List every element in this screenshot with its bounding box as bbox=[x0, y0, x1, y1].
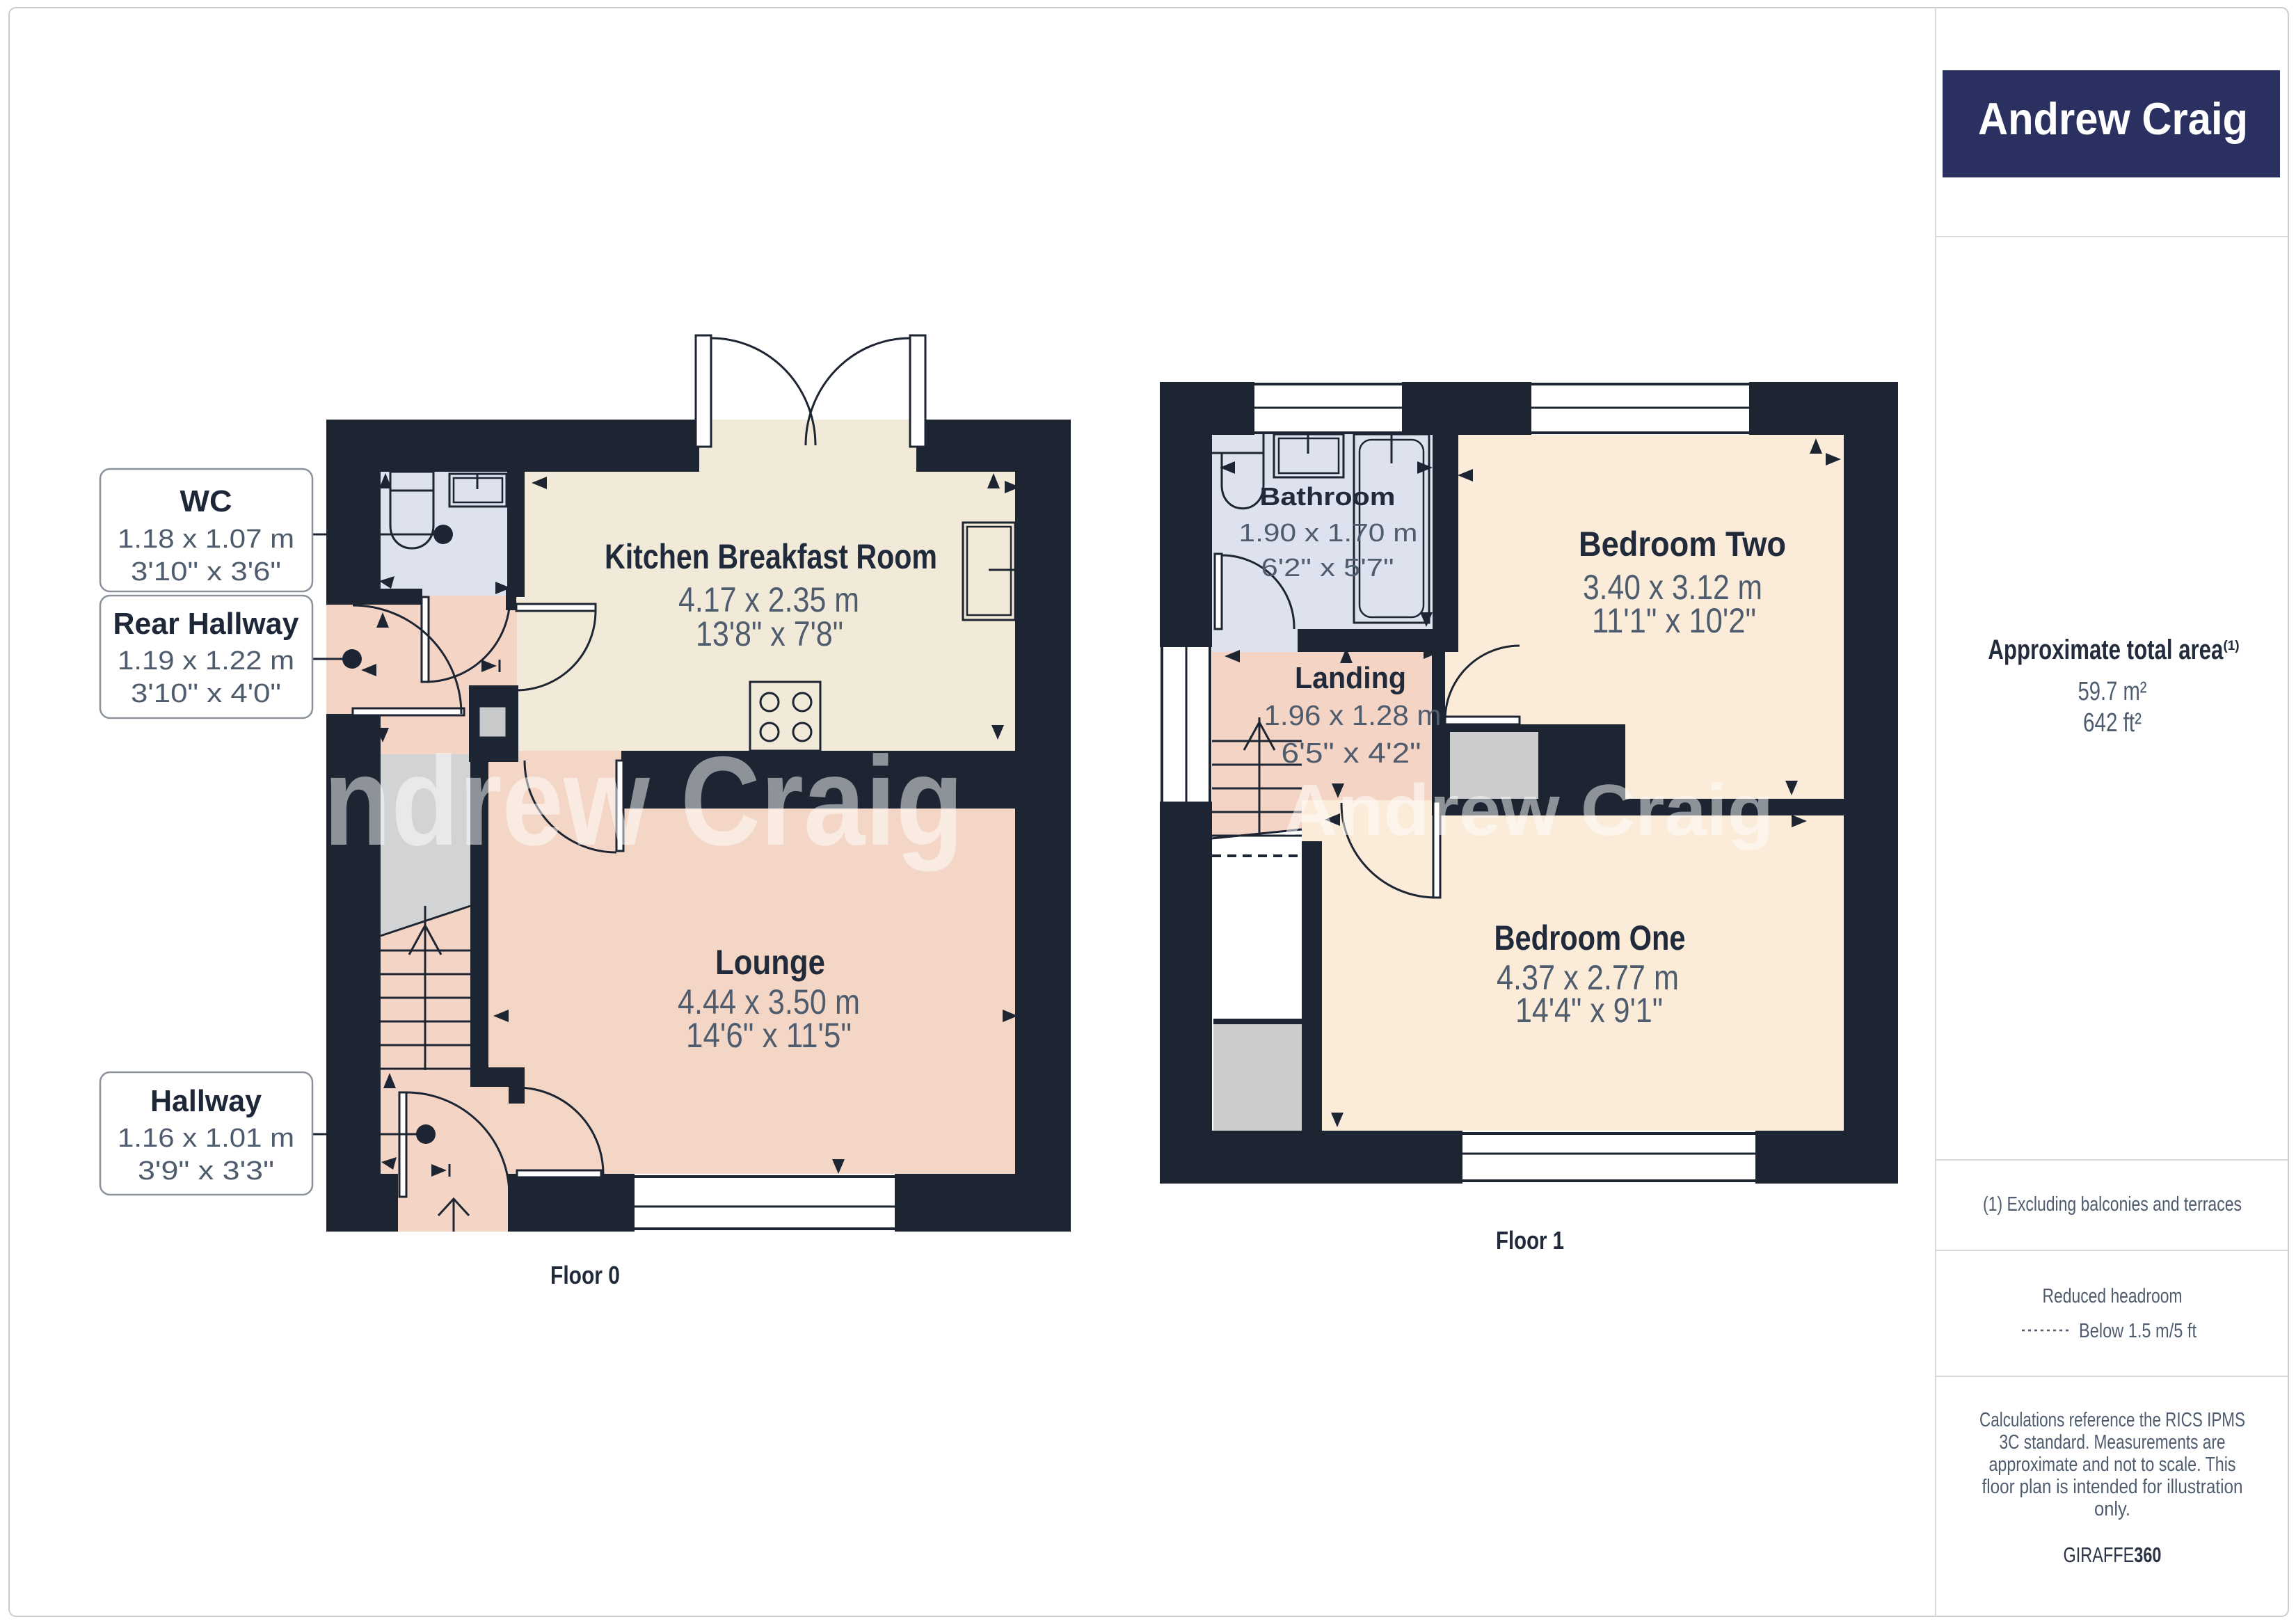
svg-text:Floor 1: Floor 1 bbox=[1496, 1226, 1564, 1255]
svg-text:Andrew Craig: Andrew Craig bbox=[1978, 93, 2248, 144]
svg-text:6'2" x 5'7": 6'2" x 5'7" bbox=[1261, 553, 1394, 582]
svg-text:3C standard. Measurements are: 3C standard. Measurements are bbox=[2000, 1431, 2226, 1454]
svg-text:(1) Excluding balconies and te: (1) Excluding balconies and terraces bbox=[1983, 1193, 2242, 1216]
svg-text:Reduced headroom: Reduced headroom bbox=[2043, 1285, 2183, 1307]
svg-text:13'8" x 7'8": 13'8" x 7'8" bbox=[696, 614, 843, 653]
svg-text:Bedroom Two: Bedroom Two bbox=[1579, 525, 1786, 564]
svg-text:11'1" x 10'2": 11'1" x 10'2" bbox=[1592, 601, 1756, 640]
svg-text:6'5" x 4'2": 6'5" x 4'2" bbox=[1282, 737, 1421, 769]
svg-text:Calculations reference the RIC: Calculations reference the RICS IPMS bbox=[1979, 1409, 2245, 1431]
svg-text:Bathroom: Bathroom bbox=[1260, 482, 1396, 511]
svg-text:Kitchen Breakfast Room: Kitchen Breakfast Room bbox=[605, 537, 937, 576]
svg-text:Approximate total area(1): Approximate total area(1) bbox=[1988, 635, 2239, 665]
svg-text:14'6" x 11'5": 14'6" x 11'5" bbox=[686, 1016, 852, 1055]
svg-text:1.19 x 1.22 m: 1.19 x 1.22 m bbox=[118, 646, 294, 676]
svg-text:3'10" x 4'0": 3'10" x 4'0" bbox=[131, 679, 281, 708]
svg-text:4.17 x 2.35 m: 4.17 x 2.35 m bbox=[678, 580, 859, 619]
svg-text:3'9" x 3'3": 3'9" x 3'3" bbox=[138, 1156, 274, 1186]
svg-text:Floor 0: Floor 0 bbox=[550, 1261, 620, 1289]
svg-text:1.96 x 1.28 m: 1.96 x 1.28 m bbox=[1264, 699, 1442, 731]
svg-text:Andrew Craig: Andrew Craig bbox=[1283, 770, 1773, 851]
svg-text:floor plan is intended for ill: floor plan is intended for illustration bbox=[1982, 1476, 2243, 1498]
svg-text:642 ft²: 642 ft² bbox=[2083, 708, 2142, 738]
svg-text:Rear Hallway: Rear Hallway bbox=[113, 607, 300, 641]
svg-text:approximate and not to scale.: approximate and not to scale. This bbox=[1989, 1454, 2236, 1476]
svg-text:Andrew Craig: Andrew Craig bbox=[244, 730, 964, 872]
svg-text:1.90 x 1.70 m: 1.90 x 1.70 m bbox=[1239, 518, 1418, 547]
svg-text:1.18 x 1.07 m: 1.18 x 1.07 m bbox=[118, 525, 294, 554]
svg-text:Lounge: Lounge bbox=[715, 943, 825, 982]
svg-text:Bedroom One: Bedroom One bbox=[1494, 918, 1686, 957]
svg-text:Landing: Landing bbox=[1295, 661, 1406, 695]
svg-text:Hallway: Hallway bbox=[150, 1084, 262, 1118]
svg-text:14'4" x 9'1": 14'4" x 9'1" bbox=[1515, 991, 1663, 1030]
svg-text:59.7 m²: 59.7 m² bbox=[2078, 677, 2147, 706]
svg-text:3'10" x 3'6": 3'10" x 3'6" bbox=[131, 557, 281, 587]
svg-text:Below 1.5 m/5 ft: Below 1.5 m/5 ft bbox=[2079, 1320, 2197, 1342]
svg-text:WC: WC bbox=[180, 484, 232, 518]
svg-text:only.: only. bbox=[2094, 1498, 2130, 1520]
svg-text:GIRAFFE360: GIRAFFE360 bbox=[2064, 1543, 2162, 1567]
svg-text:1.16 x 1.01 m: 1.16 x 1.01 m bbox=[118, 1124, 294, 1153]
